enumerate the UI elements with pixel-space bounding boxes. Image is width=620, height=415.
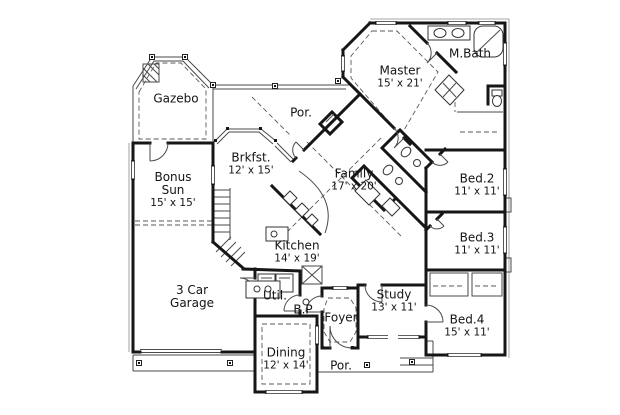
porch-posts [137,55,415,368]
floor-plan: Gazebo Por. Master 15' x 21' M.Bath Brkf… [0,0,620,415]
floor-plan-drawing [0,0,620,415]
fixtures [246,26,503,305]
